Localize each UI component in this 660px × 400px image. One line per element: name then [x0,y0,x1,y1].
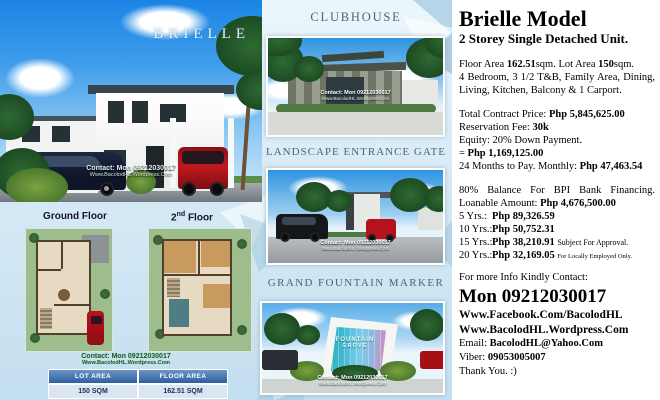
model-title: Brielle Model [459,6,655,31]
loanable-label: Loanable Amount: [459,198,540,209]
lot-area-value: 150 SQM [48,384,138,399]
contact-name-number: Mon 09212030017 [459,285,655,308]
plan-stairs [40,308,51,330]
floor-area-value: 162.51 SQM [138,384,228,399]
watermark-site: Www.BacolodHL.Wordpress.Com [268,96,443,101]
suv-window [282,217,316,225]
fountain-grove-sign: FOUNTAIN GROVE [326,337,384,349]
plan-bush [237,239,247,249]
area-unit: sqm. [614,59,634,70]
reservation-fee: Reservation Fee: 30k [459,121,655,134]
floor-area-label: Floor Area [459,59,507,70]
wheel [182,182,196,196]
plan-wall [38,269,61,271]
loanable-amount: Loanable Amount: Php 4,676,500.00 [459,197,655,210]
viber-line: Viber: 09053005007 [459,351,655,365]
clubhouse-upper-roof [322,51,384,62]
palm-tree [296,325,320,345]
plan-bedroom [203,284,229,308]
red-car [420,351,445,369]
wheel [210,182,224,196]
model-subtitle: 2 Storey Single Detached Unit. [459,31,655,47]
features-line-1: 4 Bedroom, 3 1/2 T&B, Family Area, Dinin… [459,71,655,84]
balcony-railing [194,112,232,114]
reservation-label: Reservation Fee: [459,122,532,133]
facebook-url: Www.Facebook.Com/BacolodHL [459,308,655,323]
term-note: For Locally Employed Only. [557,253,632,260]
area-table: LOT AREA FLOOR AREA 150 SQM 162.51 SQM [48,369,228,399]
email-line: Email: BacolodHL@Yahoo.Com [459,337,655,351]
ground-floor-plan [25,228,113,352]
area-line: Floor Area 162.51sqm. Lot Area 150sqm. [459,58,655,71]
cloud [5,58,75,98]
palm-tree [410,309,444,341]
wordpress-url: Www.BacolodHL.Wordpress.Com [459,323,655,338]
details-panel: Brielle Model 2 Storey Single Detached U… [452,0,660,400]
balance-line: 80% Balance For BPI Bank Financing. [459,184,655,197]
plans-watermark: Contact: Mon 09212030017 Www.BacolodHL.W… [25,353,227,366]
watermark-site: Www.BacolodHL.Wordpress.Com [268,246,443,251]
plan-20yrs: 20 Yrs.:Php 32,169.05 For Locally Employ… [459,249,655,263]
window [52,126,70,142]
plan-bedroom [164,241,195,273]
equity-amount: = Php 1,169,125.00 [459,147,655,160]
term-amount: Php 32,169.05 [492,250,555,261]
palm-tree [326,190,352,212]
flyer-page: BRIELLE Contact: Mon 09212030017 Www.Bac… [0,0,660,400]
van-windshield [182,151,224,164]
email-value: BacolodHL@Yahoo.Com [490,338,603,349]
plan-interior [36,240,91,335]
window [132,101,148,123]
fountain-marker-title: GRAND FOUNTAIN MARKER [260,277,452,289]
equity-line: Equity: 20% Down Payment. [459,134,655,147]
area-table-value-row: 150 SQM 162.51 SQM [48,384,228,399]
reservation-value: 30k [532,122,548,133]
plan-dining-table [58,289,70,301]
palm-tree [294,56,324,82]
palm-tree [264,313,300,345]
lot-area-label: sqm. Lot Area [536,59,598,70]
term-amount: Php 89,326.59 [492,211,555,222]
lot-area-header: LOT AREA [48,369,138,384]
plan-wall [61,242,63,269]
plan-bush [237,325,247,335]
watermark-site: Www.BacolodHL.Wordpress.Com [262,381,443,386]
window [108,101,124,123]
email-label: Email: [459,338,490,349]
term-label: 20 Yrs.: [459,249,492,262]
plan-10yrs: 10 Yrs.:Php 50,752.31 [459,223,655,236]
monthly-label: 24 Months to Pay. Monthly: [459,161,580,172]
term-label: 10 Yrs.: [459,223,492,236]
photo-watermark: Contact: Mon 09212030017 Www.BacolodHL.W… [262,375,443,386]
tcp-value: Php 5,845,625.00 [549,109,625,120]
monthly-line: 24 Months to Pay. Monthly: Php 47,463.54 [459,160,655,173]
contact-intro: For more Info Kindly Contact: [459,271,655,285]
area-table-header-row: LOT AREA FLOOR AREA [48,369,228,384]
floor-area-value: 162.51 [507,59,536,70]
pavement [268,112,443,137]
term-label: 5 Yrs.: [459,210,492,223]
plan-wall [198,241,200,275]
sign-line-2: GROVE [326,343,384,349]
plan-wall [54,304,90,306]
term-amount: Php 38,210.91 [492,237,555,248]
second-floor-rest: Floor [185,212,213,223]
watermark-contact: Contact: Mon 09212030017 [25,353,227,360]
watermark-contact: Contact: Mon 09212030017 [0,165,262,172]
floor-area-header: FLOOR AREA [138,369,228,384]
second-floor-sup: nd [177,211,186,218]
plan-interior [162,239,231,337]
watermark-site: Www.BacolodHL.Wordpress.Com [25,360,227,366]
plan-bedroom [201,241,230,267]
brielle-brand-text: BRIELLE [153,26,250,43]
features-line-2: Living, Kitchen, Balcony & 1 Carport. [459,84,655,97]
term-amount: Php 50,752.31 [492,224,555,235]
plan-wall [164,274,229,276]
tcp-label: Total Contract Price: [459,109,549,120]
photo-watermark: Contact: Mon 09212030017 Www.BacolodHL.W… [268,90,443,101]
term-label: 15 Yrs.: [459,236,492,249]
dark-car [262,350,298,370]
photo-watermark: Contact: Mon 09212030017 Www.BacolodHL.W… [268,240,443,251]
ground-floor-label: Ground Floor [20,211,130,222]
plan-5yrs: 5 Yrs.:Php 89,326.59 [459,210,655,223]
clubhouse-photo: Contact: Mon 09212030017 Www.BacolodHL.W… [266,36,445,137]
second-floor-label: 2nd Floor [138,211,246,223]
viber-value: 09053005007 [488,352,546,363]
viber-label: Viber: [459,352,488,363]
plan-15yrs: 15 Yrs.:Php 38,210.91 Subject For Approv… [459,236,655,249]
second-floor-plan [148,228,252,352]
fountain-marker-photo: FOUNTAIN GROVE Contact: Mon 09212030017 … [260,301,445,395]
plan-car-windshield [91,316,102,324]
loanable-value: Php 4,676,500.00 [540,198,616,209]
total-contract-price: Total Contract Price: Php 5,845,625.00 [459,108,655,121]
palm-tree [216,16,262,76]
monthly-value: Php 47,463.54 [580,161,643,172]
photo-watermark: Contact: Mon 09212030017 Www.BacolodHL.W… [0,165,262,178]
house-render-photo: BRIELLE Contact: Mon 09212030017 Www.Bac… [0,0,262,202]
lot-area-value: 150 [598,59,614,70]
plan-bed [169,299,189,327]
plan-bush [100,289,110,299]
plan-stairs [167,278,180,297]
entrance-gate-title: LANDSCAPE ENTRANCE GATE [260,146,452,158]
term-note: Subject For Approval. [557,238,628,247]
thank-you: Thank You. :) [459,365,655,379]
clubhouse-title: CLUBHOUSE [260,10,452,25]
equity-value: Php 1,169,125.00 [468,148,544,159]
equals-sign: = [459,148,468,159]
watermark-site: Www.BacolodHL.Wordpress.Com [0,172,262,178]
entrance-gate-photo: Contact: Mon 09212030017 Www.BacolodHL.W… [266,168,445,265]
hubcap [104,186,109,191]
